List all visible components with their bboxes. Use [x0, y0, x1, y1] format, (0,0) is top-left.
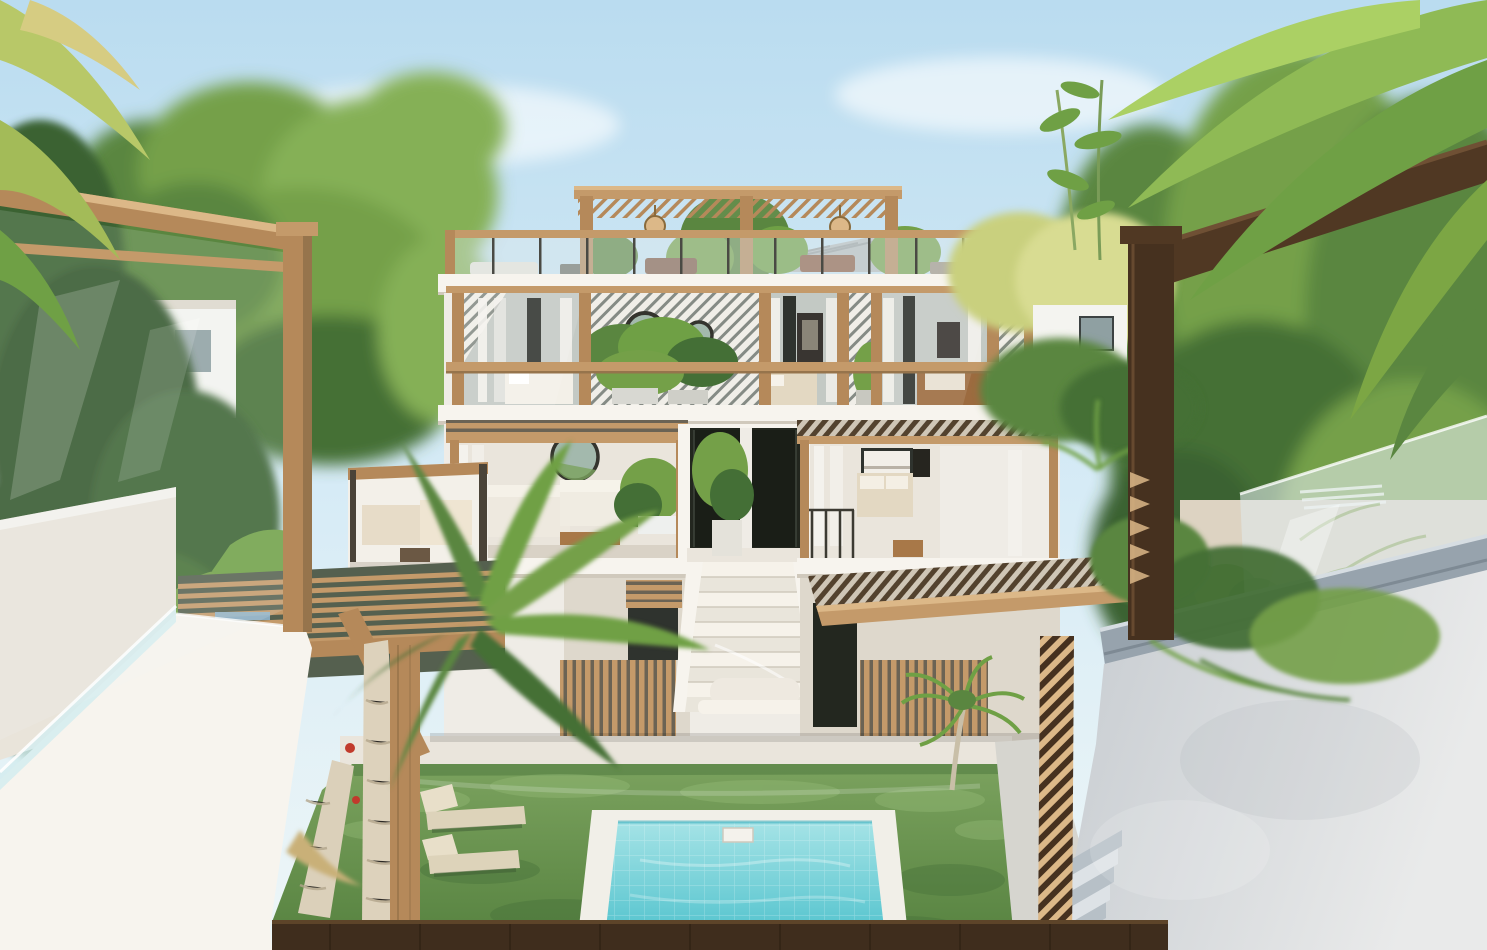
rooftop-railing — [445, 230, 1030, 276]
oven — [913, 449, 930, 477]
bedroom-window-center — [763, 293, 843, 405]
outdoor-sofa — [362, 505, 420, 545]
central-staircase — [673, 562, 822, 714]
pool-skimmer — [723, 828, 753, 842]
pool — [578, 810, 908, 936]
bedroom-window-left — [464, 293, 585, 405]
planter — [668, 390, 708, 404]
deck-table — [893, 540, 923, 557]
striped-slat-pole — [1038, 636, 1074, 950]
architectural-render — [0, 0, 1487, 950]
planter — [612, 388, 658, 404]
pergola-post-lower — [390, 640, 420, 928]
slat-panel-mirrors — [582, 293, 765, 405]
villa-scene — [0, 0, 1487, 950]
balcony-rail — [446, 362, 1034, 371]
second-floor — [444, 293, 1036, 405]
foreground-wood-ledge — [272, 920, 1168, 950]
entry-door — [752, 430, 796, 547]
kitchen-window — [861, 448, 913, 477]
